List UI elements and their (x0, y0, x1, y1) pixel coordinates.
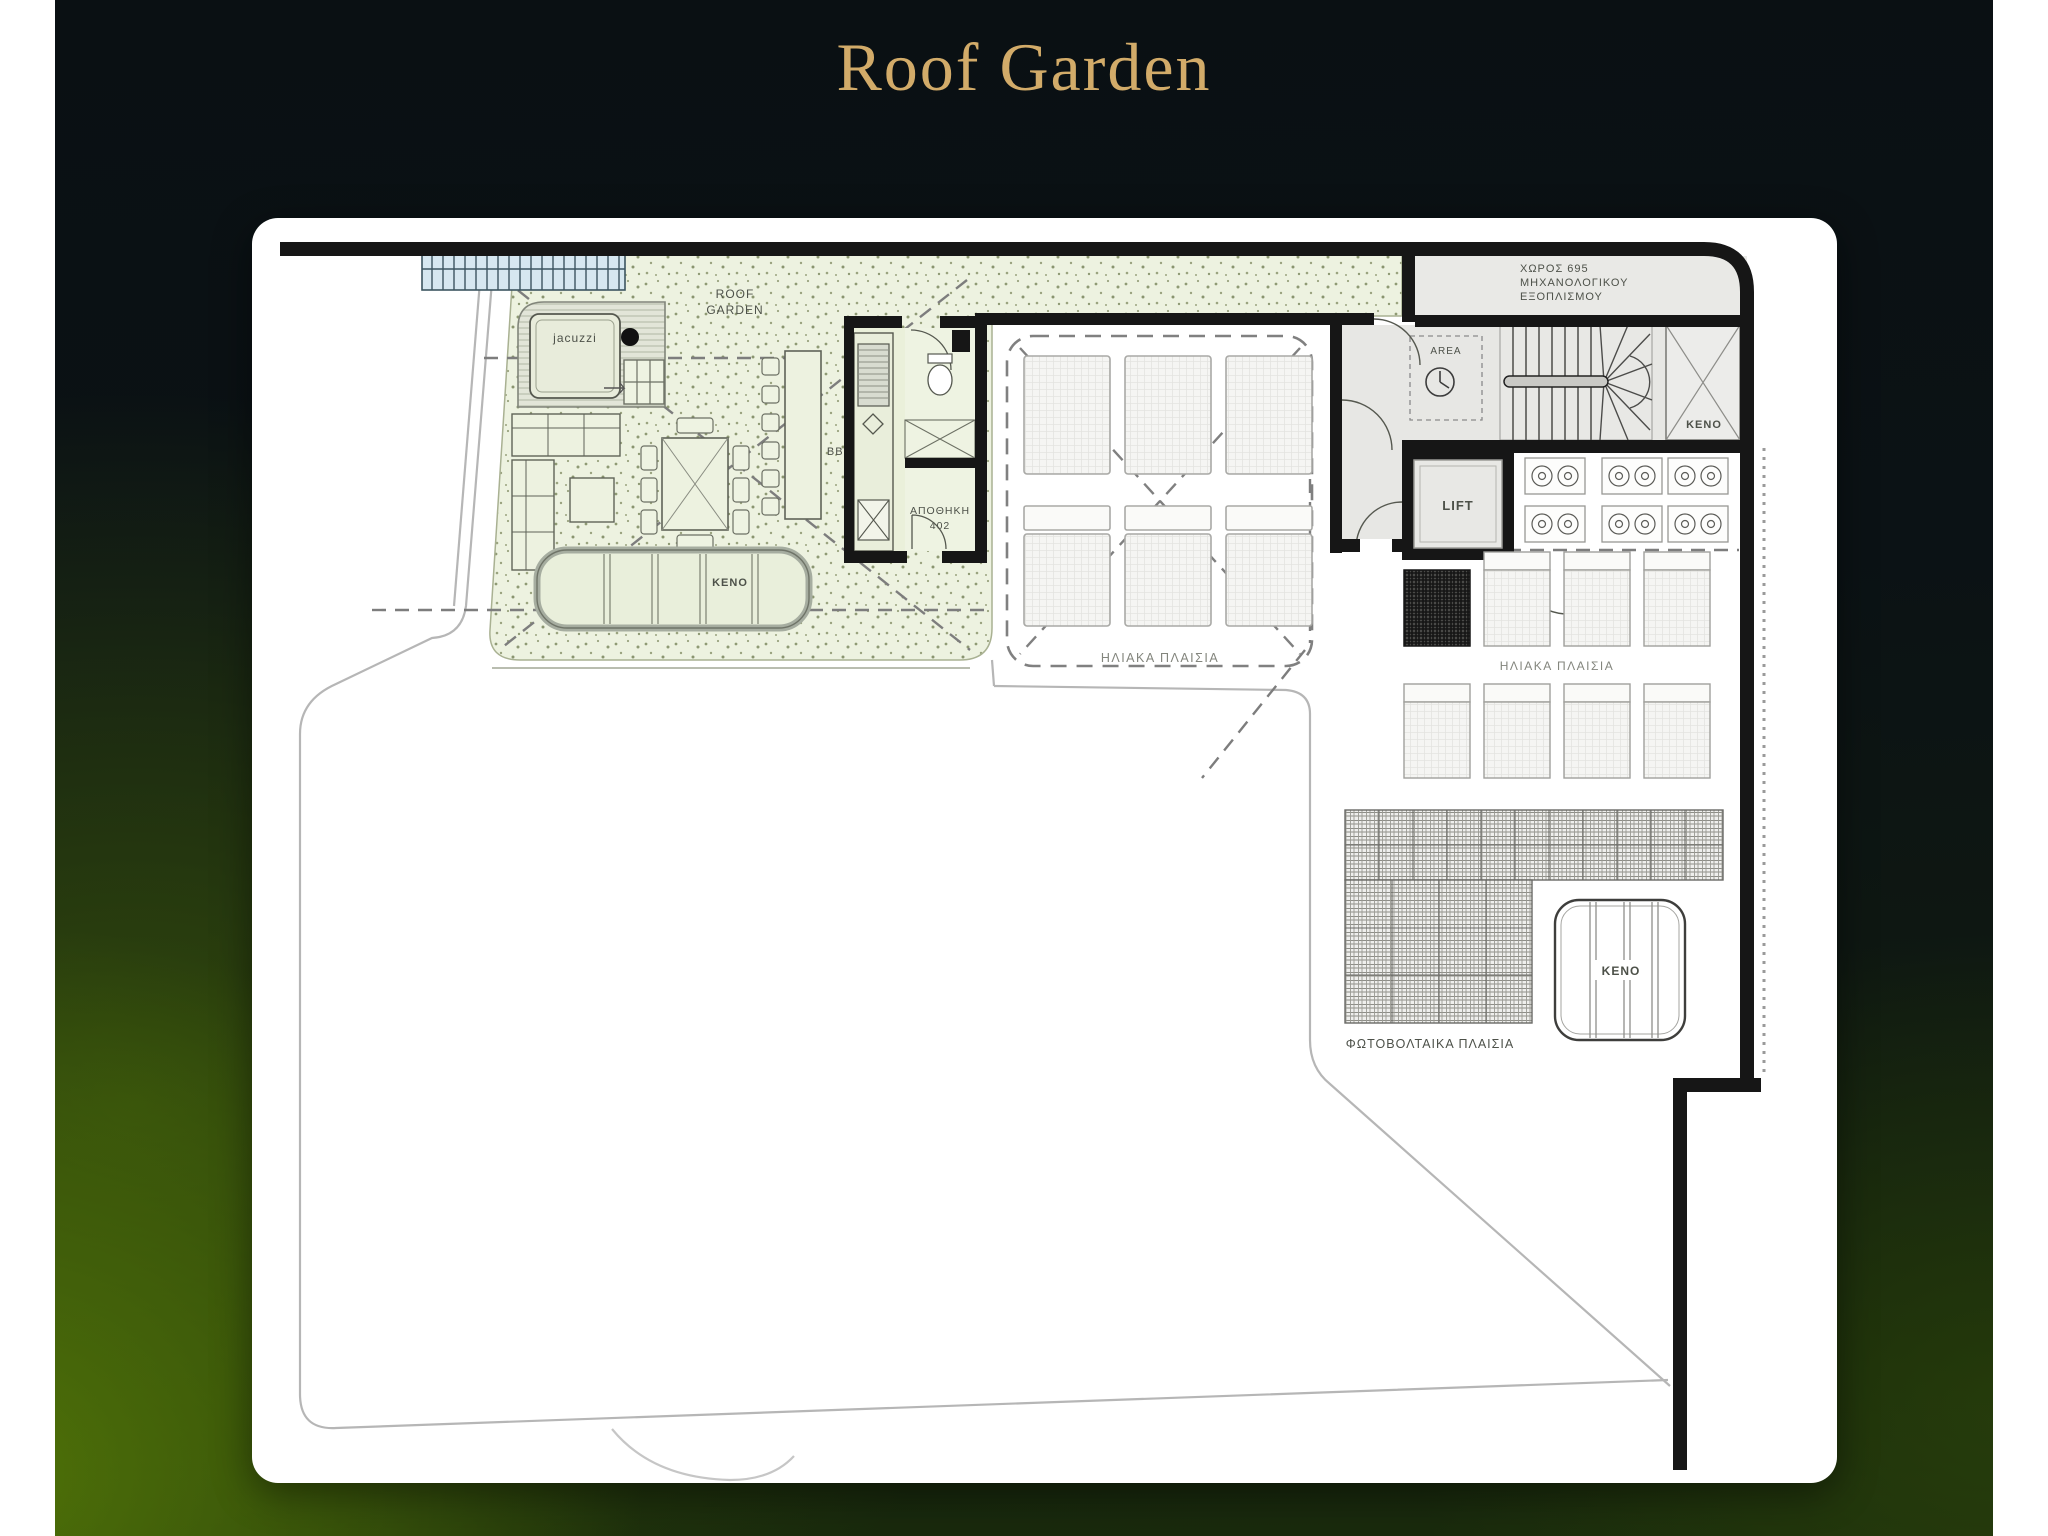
lift: LIFT (1402, 448, 1514, 560)
jacuzzi-deck: jacuzzi (518, 302, 665, 407)
fan-coil-units (1525, 458, 1728, 542)
solar-mid-label: ΗΛΙΑΚΑ ΠΛΑΙΣΙΑ (1101, 651, 1219, 665)
solar-panels-right: ΗΛΙΑΚΑ ΠΛΑΙΣΙΑ (1404, 552, 1710, 778)
area-label: AREA (1430, 346, 1461, 357)
stairs (1500, 325, 1652, 440)
mech-label-line1: ΧΩΡΟΣ 695 (1520, 263, 1589, 275)
mech-label-line3: ΕΞΟΠΛΙΣΜΟΥ (1520, 291, 1603, 303)
solar-terrace-mid: ΗΛΙΑΚΑ ΠΛΑΙΣΙΑ (1007, 336, 1312, 666)
keno-stair-label: KENO (1686, 419, 1722, 431)
keno-room-top: KENO (1666, 325, 1740, 440)
floorplan-card: jacuzzi (252, 218, 1837, 1483)
storage-room: ΑΠΟΘΗΚΗ 402 (905, 468, 975, 551)
page-title: Roof Garden (55, 28, 1993, 107)
roof-garden-floorplan: jacuzzi (252, 218, 1837, 1483)
solar-right-label: ΗΛΙΑΚΑ ΠΛΑΙΣΙΑ (1500, 659, 1614, 673)
column-dot (621, 328, 639, 346)
keno-planter-left: KENO (537, 550, 809, 628)
keno-bottom-label: KENO (1602, 964, 1641, 978)
mech-label-line2: ΜΗΧΑΝΟΛΟΓΙΚΟΥ (1520, 277, 1628, 289)
roof-garden-label-line2: GARDEN (706, 303, 763, 317)
pv-label: ΦΩΤΟΒΟΛΤΑΙΚΑ ΠΛΑΙΣΙΑ (1346, 1037, 1514, 1051)
lift-label: LIFT (1442, 498, 1473, 513)
roof-garden-label-line1: ROOF (716, 287, 755, 301)
mechanical-room: ΧΩΡΟΣ 695 ΜΗΧΑΝΟΛΟΓΙΚΟΥ ΕΞΟΠΛΙΣΜΟΥ (1415, 256, 1747, 316)
slide-background: Roof Garden (55, 0, 1993, 1536)
keno-planter-label: KENO (712, 577, 748, 589)
keno-planter-bottom: KENO (1555, 900, 1685, 1040)
dark-hatch-unit (1404, 570, 1470, 646)
jacuzzi-label: jacuzzi (552, 331, 597, 345)
